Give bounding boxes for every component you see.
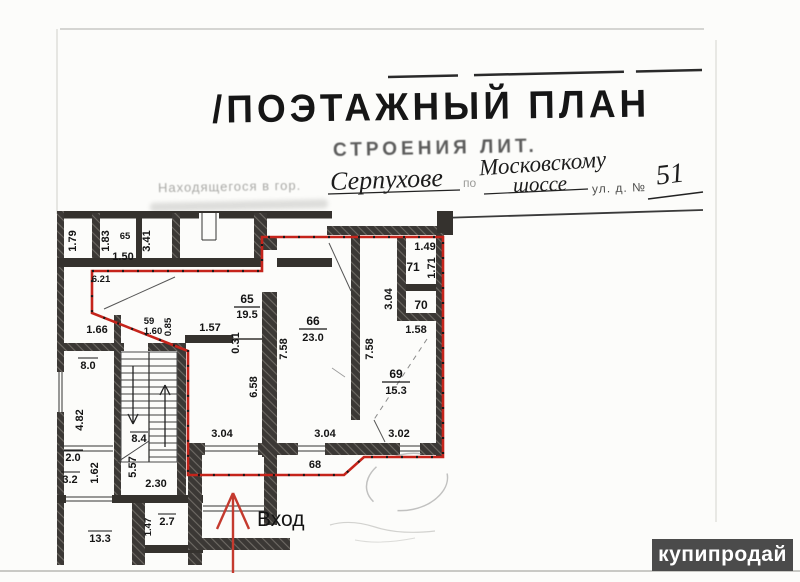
window <box>205 443 258 455</box>
wall <box>397 237 406 320</box>
wall <box>406 284 437 291</box>
wall <box>437 211 453 235</box>
pencil-squiggle <box>355 538 415 542</box>
dim-1-58: 1.58 <box>405 324 426 336</box>
entrance-label: Вход <box>257 508 305 531</box>
door-opening <box>262 250 277 292</box>
scanned-floor-plan-page: { "watermark": { "text": "купипродай" },… <box>0 0 800 582</box>
window <box>66 495 112 503</box>
dim-6-58: 6.58 <box>248 376 260 397</box>
building-continuation-line <box>440 210 703 218</box>
dim-3-02: 3.02 <box>388 428 409 440</box>
dim-4-82: 4.82 <box>74 409 86 430</box>
wall <box>57 258 332 267</box>
room-70-label: 70 <box>414 298 428 312</box>
area-2-7: 2.7 <box>159 516 174 528</box>
dim-3-04-mid: 3.04 <box>314 428 336 440</box>
room-69-number: 69 <box>389 367 403 381</box>
room-71-label: 71 <box>406 260 420 274</box>
area-8-0: 8.0 <box>80 360 95 372</box>
wall <box>188 538 290 550</box>
door-opening <box>124 343 148 351</box>
wall <box>185 335 233 343</box>
dim-1-83: 1.83 <box>100 230 112 251</box>
dim-3-41: 3.41 <box>141 230 153 251</box>
dim-1-71: 1.71 <box>426 257 438 278</box>
door-swing-line <box>374 420 385 442</box>
dim-5-57: 5.57 <box>127 456 139 477</box>
staircase <box>116 352 177 463</box>
floor-plan-drawing: Вход 1.79 1.83 65 1.50 3.41 6.21 1.66 59… <box>0 0 800 582</box>
room-66-area: 23.0 <box>302 332 323 344</box>
area-13-3: 13.3 <box>89 533 110 545</box>
dim-1-47: 1.47 <box>143 518 154 537</box>
area-3-2: 3.2 <box>62 474 77 486</box>
dim-0-31: 0.31 <box>230 332 242 353</box>
dim-0-85: 0.85 <box>163 317 174 336</box>
area-8-4: 8.4 <box>131 433 147 445</box>
under-stair-slope-line <box>104 277 175 309</box>
dim-2-30: 2.30 <box>145 478 166 490</box>
window <box>57 372 64 412</box>
underline-house-number <box>648 192 703 199</box>
dim-3-04-vertical: 3.04 <box>383 287 395 309</box>
room-69-area: 15.3 <box>385 385 406 397</box>
pencil-squiggle <box>330 522 435 532</box>
room-65-number: 65 <box>240 292 254 306</box>
dim-6-21: 6.21 <box>92 274 111 285</box>
pencil-artifacts <box>330 446 453 542</box>
dim-1-62: 1.62 <box>89 462 101 483</box>
wall <box>114 315 121 500</box>
room-65-small-label: 65 <box>120 231 131 242</box>
area-2-0: 2.0 <box>65 452 80 464</box>
wall <box>327 226 453 235</box>
entrance-arrow <box>217 493 249 573</box>
room-65-area: 19.5 <box>236 309 257 321</box>
dim-7-58-right: 7.58 <box>364 338 376 359</box>
door-swing-line <box>329 243 351 291</box>
window <box>298 443 325 455</box>
dim-1-60: 1.60 <box>144 326 163 337</box>
pencil-tick <box>332 368 345 377</box>
room-66-number: 66 <box>306 314 320 328</box>
underline-street <box>484 189 588 194</box>
room-68-label: 68 <box>309 459 321 471</box>
dim-1-50: 1.50 <box>112 251 133 263</box>
dim-7-58-left: 7.58 <box>278 338 290 359</box>
wall <box>177 343 186 503</box>
stamp-frame-line <box>388 70 702 77</box>
underline-city <box>328 190 460 194</box>
watermark-kupiprodai: купипродай <box>652 539 793 571</box>
dim-1-79: 1.79 <box>67 230 79 251</box>
dim-1-49: 1.49 <box>414 241 435 253</box>
watermark-text: купипродай <box>658 543 787 567</box>
dim-1-57: 1.57 <box>199 322 220 334</box>
dim-3-04-left: 3.04 <box>211 428 233 440</box>
dim-1-66: 1.66 <box>86 324 107 336</box>
door-opening <box>351 420 360 443</box>
